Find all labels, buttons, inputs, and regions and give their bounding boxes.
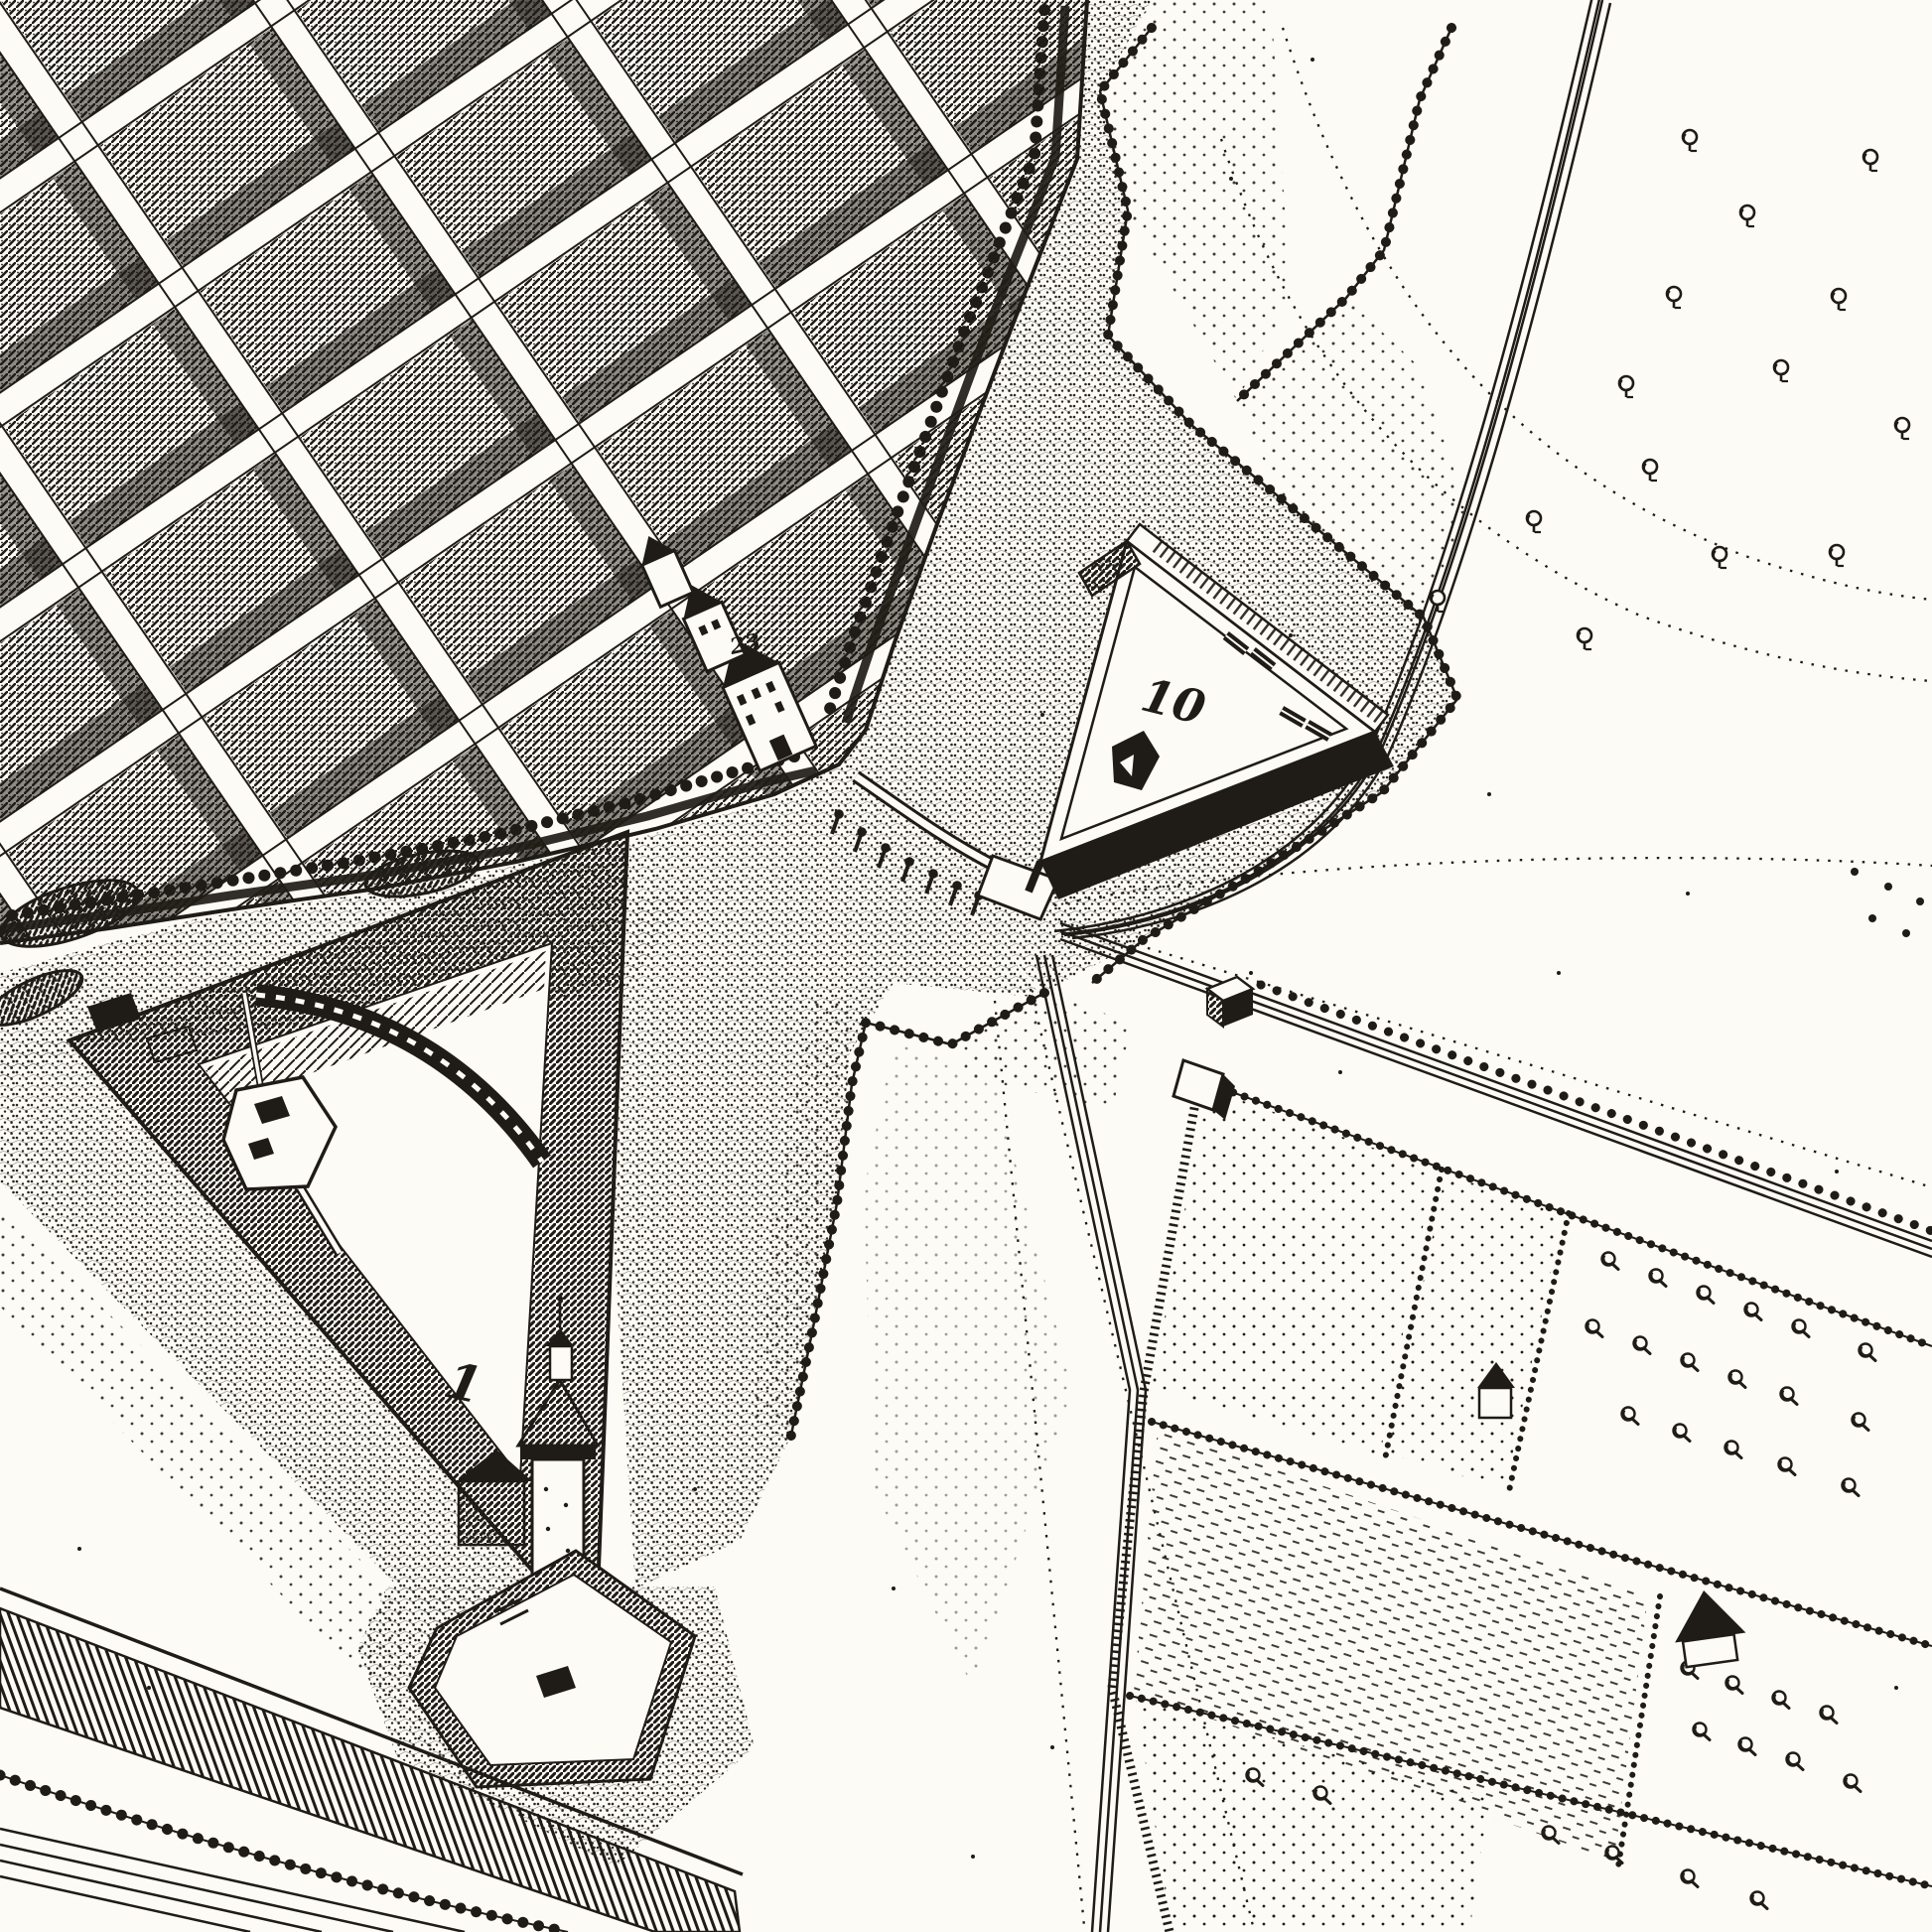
bush-icon bbox=[1884, 883, 1892, 891]
bush-icon bbox=[1851, 868, 1859, 876]
tower-lantern bbox=[550, 1346, 572, 1380]
bush-icon bbox=[1902, 929, 1910, 937]
engraved-city-map: 10 1 23 bbox=[0, 0, 1932, 1932]
house-body bbox=[1683, 1634, 1737, 1667]
bush-icon bbox=[1868, 914, 1876, 922]
bush-icon bbox=[1916, 897, 1924, 905]
tower-cornice bbox=[520, 1446, 596, 1459]
spire-ball bbox=[557, 1296, 563, 1302]
